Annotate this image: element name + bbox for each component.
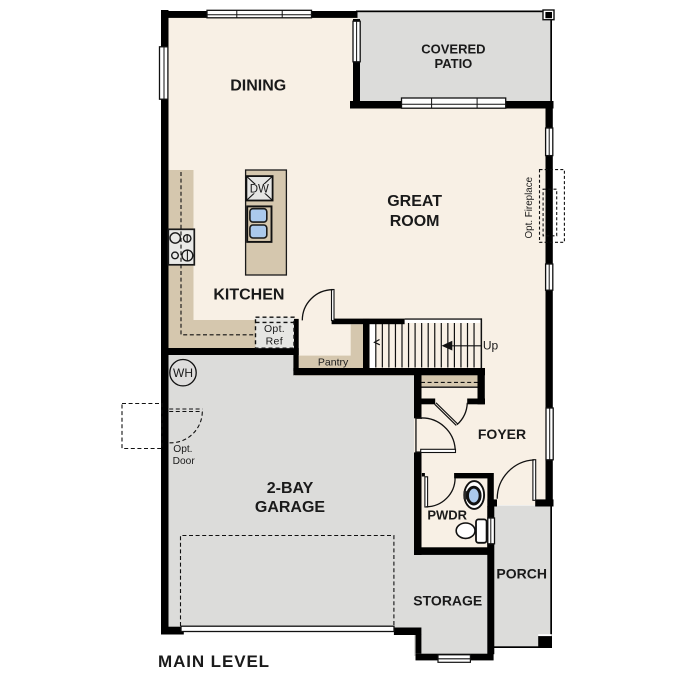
- svg-text:PWDR: PWDR: [427, 508, 467, 523]
- svg-text:STORAGE: STORAGE: [413, 593, 482, 609]
- svg-text:Opt.: Opt.: [264, 323, 285, 335]
- svg-text:WH: WH: [173, 366, 193, 380]
- svg-text:GARAGE: GARAGE: [255, 499, 326, 516]
- svg-text:COVERED: COVERED: [421, 42, 485, 57]
- svg-text:FOYER: FOYER: [478, 426, 526, 442]
- svg-text:GREAT: GREAT: [387, 193, 442, 210]
- svg-text:Opt.: Opt.: [173, 444, 192, 455]
- svg-text:DW: DW: [250, 184, 269, 196]
- svg-text:Up: Up: [483, 338, 499, 352]
- svg-text:KITCHEN: KITCHEN: [213, 287, 284, 304]
- svg-text:DINING: DINING: [230, 78, 286, 95]
- svg-text:Pantry: Pantry: [318, 357, 349, 369]
- svg-text:Door: Door: [173, 456, 196, 467]
- svg-text:PORCH: PORCH: [496, 566, 547, 582]
- svg-text:2-BAY: 2-BAY: [267, 480, 314, 497]
- svg-text:Opt. Fireplace: Opt. Fireplace: [524, 176, 535, 238]
- svg-text:Ref: Ref: [266, 335, 283, 347]
- svg-text:MAIN LEVEL: MAIN LEVEL: [158, 652, 270, 671]
- svg-text:PATIO: PATIO: [435, 56, 473, 71]
- svg-text:ROOM: ROOM: [390, 213, 440, 230]
